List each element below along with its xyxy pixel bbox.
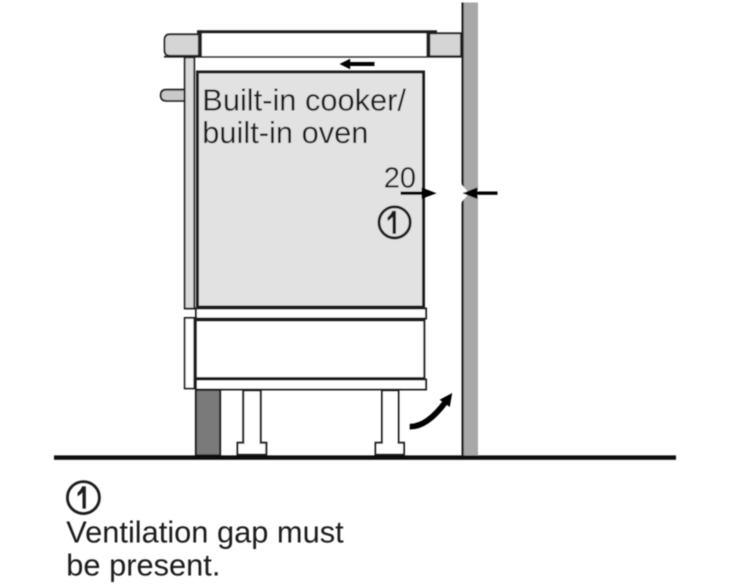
svg-text:built-in oven: built-in oven [202, 115, 368, 150]
svg-text:be present.: be present. [66, 548, 220, 583]
svg-text:Built-in cooker/: Built-in cooker/ [202, 82, 406, 117]
svg-text:20: 20 [384, 163, 416, 195]
svg-text:Ventilation gap must: Ventilation gap must [66, 515, 344, 550]
